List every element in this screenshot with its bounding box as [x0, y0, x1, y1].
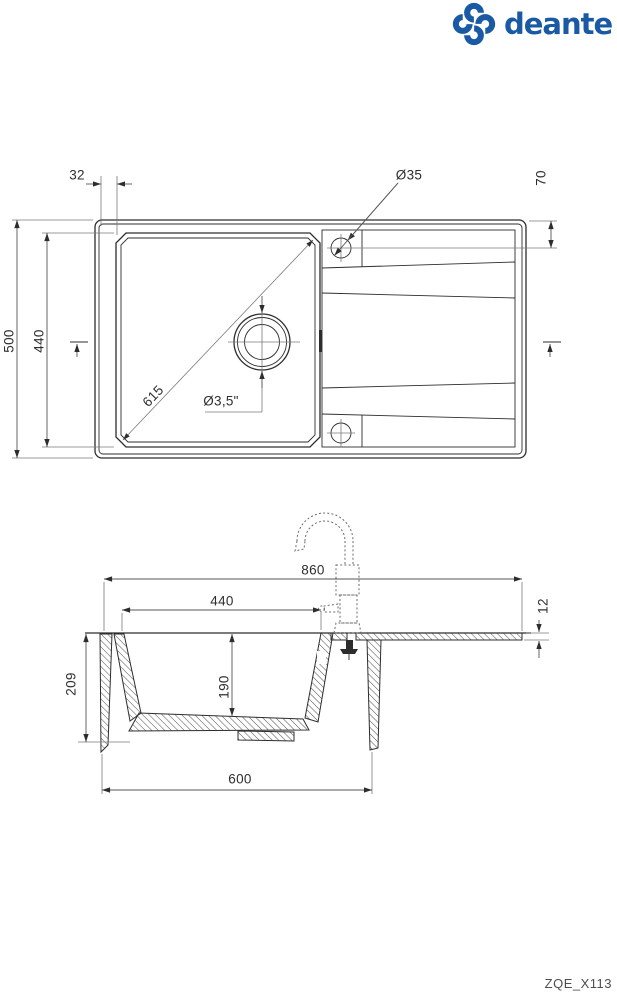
tap-tailpiece	[340, 640, 358, 660]
bowl-left-wall	[114, 634, 141, 721]
tap-hole-leader	[334, 183, 398, 256]
dim-70	[355, 221, 557, 248]
deck-left	[331, 633, 347, 640]
dim-label-600: 600	[228, 772, 251, 787]
dim-32	[86, 176, 132, 235]
bowl-bottom	[129, 713, 309, 731]
centerline-mark-left	[70, 342, 88, 357]
drainer-grooves	[322, 262, 515, 419]
technical-drawing	[0, 0, 617, 1000]
model-code: ZQE_X113	[545, 976, 612, 991]
deck-right	[356, 633, 522, 640]
overflow-mark	[319, 330, 322, 352]
dim-label-190: 190	[217, 675, 232, 698]
drawing-sheet: deante	[0, 0, 617, 1000]
sink-inner-rim-line	[99, 224, 522, 454]
dim-label-12: 12	[536, 598, 551, 614]
tap-hole-bottom	[327, 419, 355, 447]
right-support	[367, 640, 381, 750]
overflow-slot	[317, 651, 326, 664]
bowl-diagonal-line	[123, 240, 313, 440]
dim-label-tap-hole: Ø35	[396, 168, 422, 183]
dim-12	[524, 620, 549, 658]
dim-440-horizontal	[122, 610, 321, 631]
dim-label-860: 860	[301, 563, 324, 578]
dim-label-drain: Ø3,5"	[203, 394, 239, 409]
dim-label-32: 32	[69, 168, 85, 183]
section-view	[78, 513, 549, 794]
dim-440-vertical	[42, 233, 114, 447]
dim-500	[12, 220, 93, 458]
dim-label-209: 209	[64, 672, 79, 695]
dim-label-440-h: 440	[210, 594, 233, 609]
dim-label-500: 500	[2, 329, 17, 352]
top-view	[12, 176, 561, 458]
left-apron	[100, 634, 112, 752]
bowl-right-wall	[305, 633, 333, 722]
dim-label-70: 70	[534, 170, 549, 186]
centerline-mark-right	[543, 342, 561, 357]
dim-label-440-v: 440	[32, 329, 47, 352]
dim-860	[104, 579, 522, 631]
sink-outer-edge	[95, 220, 526, 458]
drain-boss	[238, 731, 294, 741]
